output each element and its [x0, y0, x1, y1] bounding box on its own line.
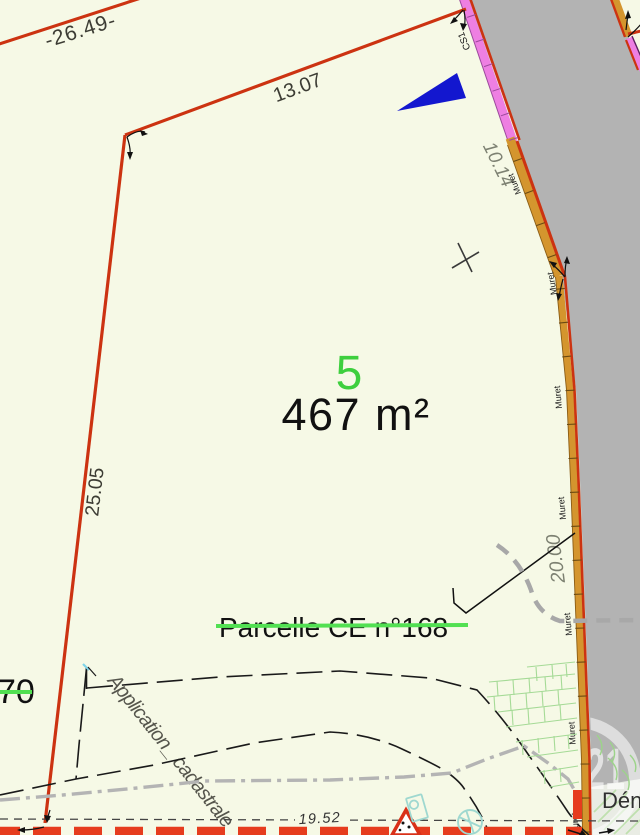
- svg-text:467 m²: 467 m²: [281, 389, 430, 440]
- svg-text:Déni: Déni: [602, 788, 640, 813]
- svg-text:Muret: Muret: [552, 385, 564, 409]
- svg-text:Muret: Muret: [556, 496, 568, 520]
- svg-text:19.52: 19.52: [298, 810, 341, 828]
- svg-text:Muret: Muret: [562, 612, 574, 636]
